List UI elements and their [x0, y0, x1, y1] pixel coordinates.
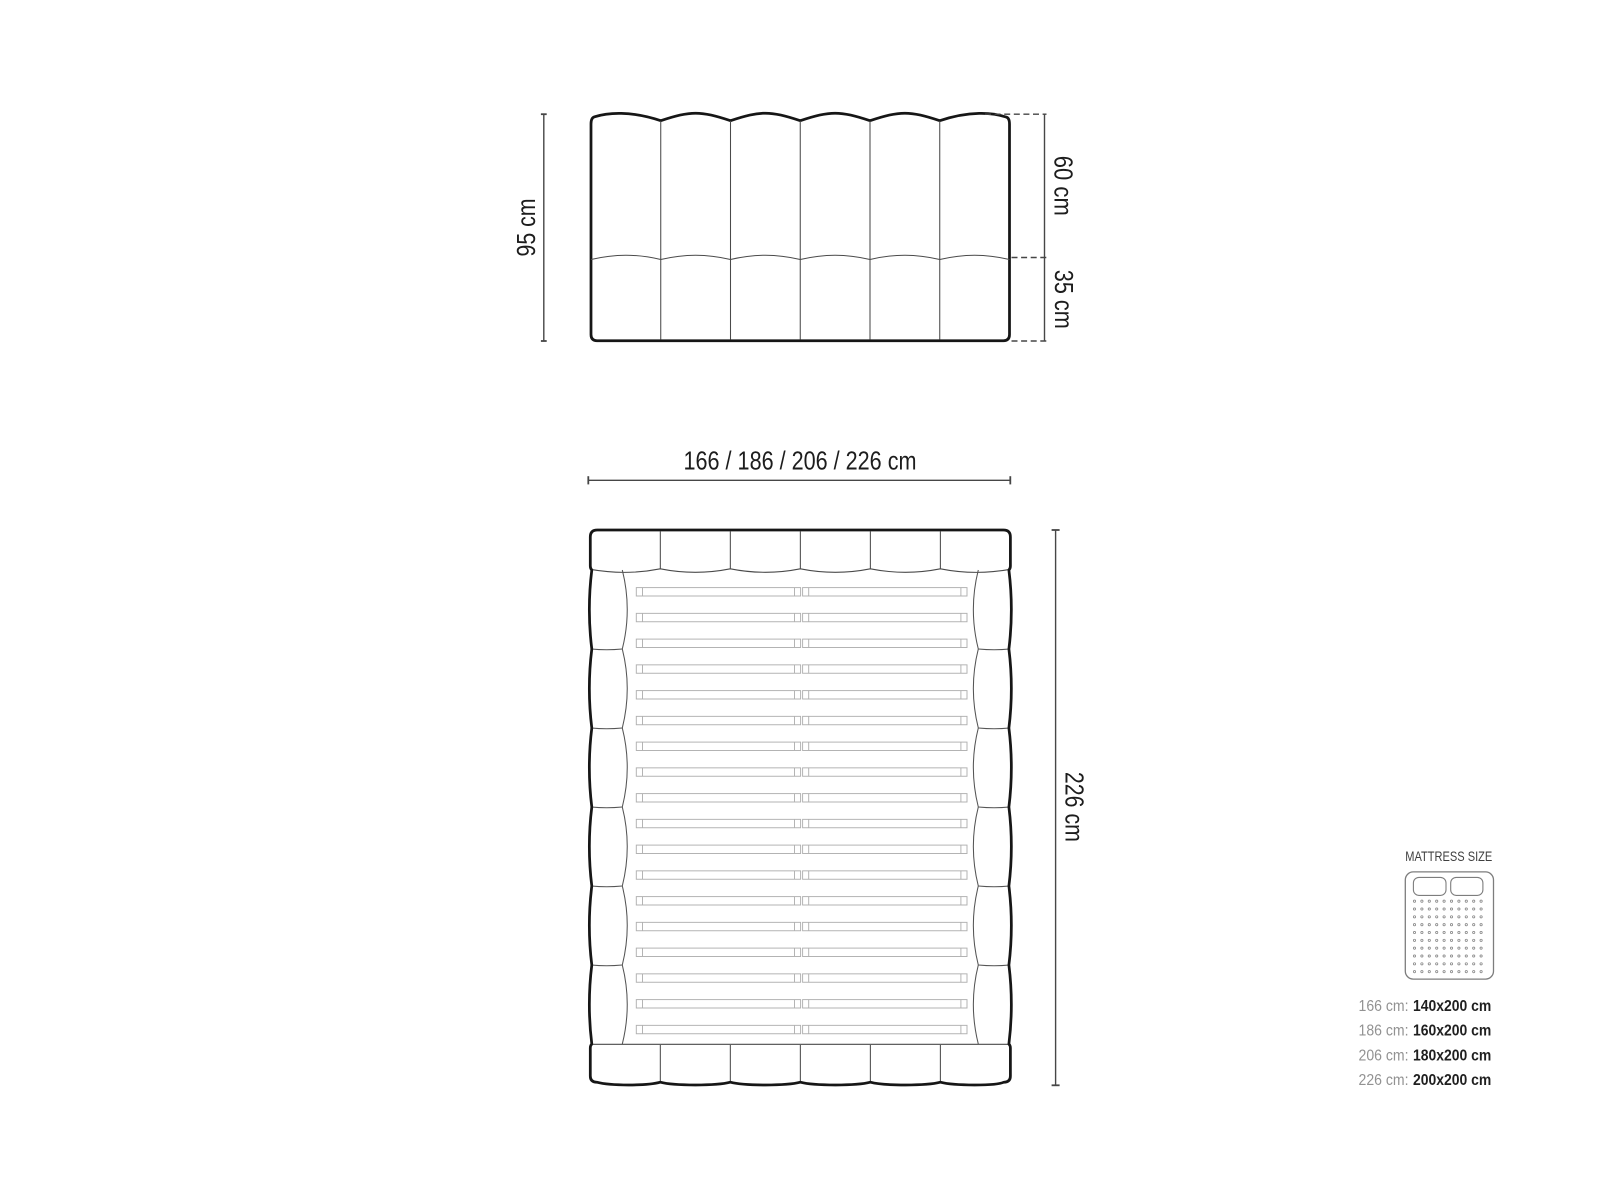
svg-text:95 cm: 95 cm: [511, 199, 541, 257]
svg-text:166 / 186 / 206 / 226 cm: 166 / 186 / 206 / 226 cm: [684, 446, 917, 476]
svg-text:140x200 cm: 140x200 cm: [1413, 998, 1491, 1015]
svg-text:160x200 cm: 160x200 cm: [1413, 1023, 1491, 1040]
svg-text:226 cm: 226 cm: [1059, 772, 1089, 842]
svg-text:35 cm: 35 cm: [1049, 270, 1079, 329]
svg-text:186 cm:: 186 cm:: [1359, 1023, 1409, 1040]
svg-text:200x200 cm: 200x200 cm: [1413, 1072, 1491, 1089]
svg-text:180x200 cm: 180x200 cm: [1413, 1047, 1491, 1064]
svg-text:60 cm: 60 cm: [1049, 156, 1079, 216]
svg-text:166 cm:: 166 cm:: [1359, 998, 1409, 1015]
svg-text:206 cm:: 206 cm:: [1359, 1047, 1409, 1064]
svg-text:MATTRESS SIZE: MATTRESS SIZE: [1405, 849, 1492, 864]
svg-text:226 cm:: 226 cm:: [1359, 1072, 1409, 1089]
